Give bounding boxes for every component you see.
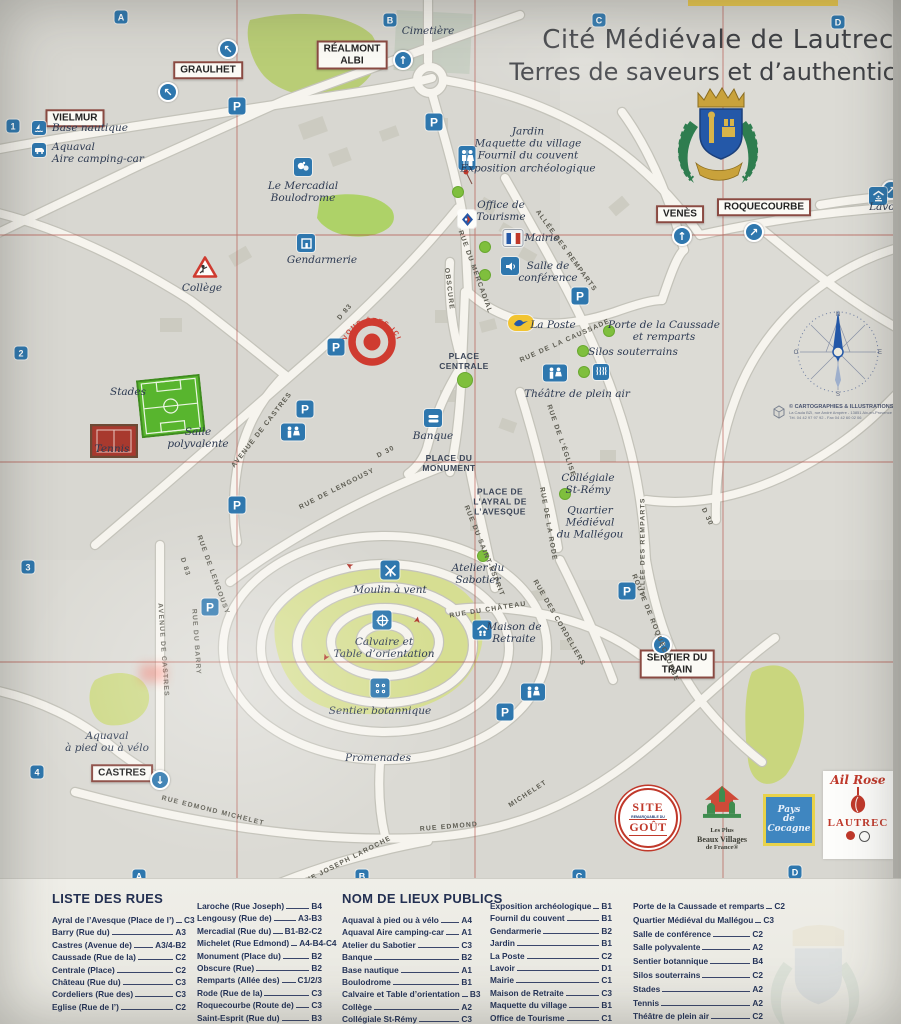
grid-ref: C3 <box>601 988 612 998</box>
poi-dot <box>577 345 589 357</box>
legend-row: Rode (Rue de la)C3 <box>197 988 322 1000</box>
garlic-icon <box>845 787 871 817</box>
legend-row: GendarmerieB2 <box>490 926 612 938</box>
school-warning-icon <box>192 256 218 285</box>
grid-ref: A2 <box>461 1002 472 1012</box>
place-name: Aquaval à pied ou à vélo <box>342 915 439 925</box>
leader-line <box>393 984 460 985</box>
leader-line <box>117 972 174 973</box>
toilets-icon <box>521 684 545 701</box>
botanic-trail-icon <box>371 679 390 698</box>
grid-ref: C2 <box>601 951 612 961</box>
leader-line <box>123 984 174 985</box>
legend-row: StadesA2 <box>633 984 763 998</box>
tennis-court <box>90 424 138 463</box>
leader-line <box>441 922 460 923</box>
leader-line <box>112 934 174 935</box>
la-poste-icon <box>508 315 534 331</box>
grid-ref: C2 <box>175 952 186 962</box>
leader-line <box>566 995 600 996</box>
map-legend: LISTE DES RUES Ayral de l’Avesque (Place… <box>0 878 901 1024</box>
conference-hall-icon <box>501 257 519 275</box>
place-name: Fournil du couvent <box>490 913 565 923</box>
legend-places-col3: Porte de la Caussade et rempartsC2Quarti… <box>633 901 763 1024</box>
sign-graulhet: GRAULHET <box>173 61 243 79</box>
leader-line <box>282 982 296 983</box>
poi-dot <box>559 488 571 500</box>
leader-line <box>283 958 309 959</box>
legend-row: Ayral de l’Avesque (Place de l’)C3 <box>52 915 186 927</box>
cube-icon <box>772 404 786 420</box>
sign-venes: VENÈS <box>656 205 704 223</box>
leader-line <box>711 1018 750 1019</box>
grid-ref: C2 <box>175 965 186 975</box>
street-name: Obscure (Rue) <box>197 963 254 973</box>
parking-icon: P <box>229 497 246 514</box>
page-subtitle: Terres de saveurs et d’authenticité <box>509 58 901 86</box>
grid-ref: C1/2/3 <box>298 975 322 985</box>
leader-line <box>567 920 600 921</box>
place-name: Maquette du village <box>490 1000 567 1010</box>
svg-text:E: E <box>878 350 882 356</box>
place-name: Porte de la Caussade et remparts <box>633 901 764 911</box>
cartographer-credit: © CARTOGRAPHIES & ILLUSTRATIONS La Caula… <box>772 404 900 420</box>
parking-icon: P <box>202 599 219 616</box>
legend-row: Roquecourbe (Route de)C3 <box>197 1000 322 1012</box>
grid-marker-d-bottom: D <box>789 866 802 879</box>
legend-row: Théâtre de plein airC2 <box>633 1011 763 1024</box>
place-name: Exposition archéologique <box>490 901 591 911</box>
poi-dot <box>479 241 491 253</box>
leader-line <box>527 958 600 959</box>
legend-row: Maison de RetraiteC3 <box>490 988 612 1000</box>
sailing-base-icon <box>32 121 46 135</box>
street-name: Monument (Place du) <box>197 951 281 961</box>
legend-places-col1: Aquaval à pied ou à véloA4Aquaval Aire c… <box>342 915 472 1024</box>
parking-icon: P <box>229 98 246 115</box>
legend-row: LavoirD1 <box>490 963 612 975</box>
legend-row: Silos souterrainsC2 <box>633 970 763 984</box>
grid-ref: C3 <box>175 977 186 987</box>
grid-ref: C3 <box>175 989 186 999</box>
legend-row: Michelet (Rue Edmond)A4-B4-C4 <box>197 938 322 950</box>
legend-row: Quartier Médiéval du MallégouC3 <box>633 915 763 929</box>
street-name: Barry (Rue du) <box>52 927 110 937</box>
grid-ref: A3 <box>175 927 186 937</box>
label-place-monument: PLACE DU MONUMENT <box>422 453 475 473</box>
legend-row: Porte de la Caussade et rempartsC2 <box>633 901 763 915</box>
place-name: Boulodrome <box>342 977 391 987</box>
legend-row: Remparts (Allée des)C1/2/3 <box>197 975 322 987</box>
leader-line <box>516 982 599 983</box>
legend-row: Eglise (Rue de l’)C2 <box>52 1002 186 1014</box>
place-name: Office de Tourisme <box>490 1013 565 1023</box>
place-name: Théâtre de plein air <box>633 1011 709 1021</box>
place-name: Collégiale St-Rémy <box>342 1014 417 1024</box>
legend-row: Atelier du SabotierC3 <box>342 940 472 952</box>
grid-ref: B4 <box>752 956 763 966</box>
legend-row: Mercadial (Rue du)B1-B2-C2 <box>197 926 322 938</box>
place-name: Calvaire et Table d’orientation <box>342 989 460 999</box>
leader-line <box>593 908 599 909</box>
street-name: Remparts (Allée des) <box>197 975 280 985</box>
street-name: Centrale (Place) <box>52 965 115 975</box>
place-name: La Poste <box>490 951 525 961</box>
street-name: Roquecourbe (Route de) <box>197 1000 294 1010</box>
street-name: Laroche (Rue Joseph) <box>197 901 284 911</box>
grid-marker-1-left: 1 <box>7 120 20 133</box>
legend-streets-title: LISTE DES RUES <box>52 891 163 906</box>
place-name: Stades <box>633 984 660 994</box>
place-name: Lavoir <box>490 963 515 973</box>
village-icon <box>699 784 745 822</box>
grid-ref: A4-B4-C4 <box>299 938 336 948</box>
legend-row: Saint-Esprit (Rue du)B3 <box>197 1013 322 1024</box>
gendarmerie-icon <box>297 234 315 252</box>
washhouse-icon <box>869 187 887 205</box>
svg-text:N: N <box>836 312 840 318</box>
label-place-ayral: PLACE DE L’AYRAL DE L’AVESQUE <box>473 487 527 518</box>
leader-line <box>419 1021 459 1022</box>
leader-line <box>121 1009 174 1010</box>
place-name: Quartier Médiéval du Mallégou <box>633 915 753 925</box>
grid-ref: C2 <box>752 970 763 980</box>
legend-row: Salle de conférenceC2 <box>633 929 763 943</box>
leader-line <box>296 1007 310 1008</box>
street-name: Lengousy (Rue de) <box>197 913 272 923</box>
place-name: Banque <box>342 952 372 962</box>
direction-arrow-icon: ↑ <box>150 770 170 790</box>
grid-ref: B1 <box>601 913 612 923</box>
legend-row: Fournil du couventB1 <box>490 913 612 925</box>
street-name: Caussade (Rue de la) <box>52 952 136 962</box>
legend-row: La PosteC2 <box>490 951 612 963</box>
grid-ref: C3 <box>311 1000 322 1010</box>
grid-marker-b-top: B <box>384 14 397 27</box>
walk-arrow-icon: ➤ <box>412 615 423 624</box>
leader-line <box>517 945 599 946</box>
place-name: Gendarmerie <box>490 926 541 936</box>
leader-line <box>291 945 297 946</box>
place-name: Collège <box>342 1002 372 1012</box>
grid-ref: A2 <box>752 984 763 994</box>
legend-places-col2: Exposition archéologiqueB1Fournil du cou… <box>490 901 612 1024</box>
place-name: Mairie <box>490 975 514 985</box>
leader-line <box>661 1005 750 1006</box>
leader-line <box>766 908 772 909</box>
open-air-theatre-icon <box>593 364 609 380</box>
legend-row: JardinB1 <box>490 938 612 950</box>
grid-ref: A2 <box>752 942 763 952</box>
grid-ref: B1 <box>601 938 612 948</box>
label-place-centrale: PLACE CENTRALE <box>439 351 488 371</box>
leader-line <box>517 970 599 971</box>
legend-row: Aquaval à pied ou à véloA4 <box>342 915 472 927</box>
grid-ref: C2 <box>175 1002 186 1012</box>
grid-ref: B1 <box>461 977 472 987</box>
stadium-field <box>136 374 206 443</box>
sign-castres: CASTRES <box>91 764 153 782</box>
grid-ref: C3 <box>311 988 322 998</box>
certification-seal <box>859 831 870 842</box>
watermark-coat-of-arms <box>750 919 880 1024</box>
grid-marker-4-left: 4 <box>31 766 44 779</box>
logo-pays-de-cocagne: Pays de Cocagne <box>763 794 815 846</box>
poi-dot <box>457 372 473 388</box>
parking-icon: P <box>297 401 314 418</box>
grid-ref: A3/4-B2 <box>155 940 186 950</box>
street-name: Château (Rue du) <box>52 977 121 987</box>
legend-row: Lengousy (Rue de)A3-B3 <box>197 913 322 925</box>
leader-line <box>710 963 750 964</box>
tourist-office-icon <box>458 210 476 228</box>
place-name: Atelier du Sabotier <box>342 940 416 950</box>
leader-line <box>569 1007 599 1008</box>
legend-row: Sentier botanniqueB4 <box>633 956 763 970</box>
toilets-icon <box>459 146 476 170</box>
leader-line <box>713 936 750 937</box>
parking-icon: P <box>572 288 589 305</box>
grid-ref: B1-B2-C2 <box>285 926 322 936</box>
street-remparts: ALLÉE DES REMPARTS <box>640 497 647 596</box>
grid-ref: B2 <box>311 951 322 961</box>
leader-line <box>567 1020 600 1021</box>
retirement-home-icon <box>473 621 492 640</box>
sign-vielmur: VIELMUR <box>46 109 105 127</box>
map-panel-photo: Cité Médiévale de Lautrec Terres de save… <box>0 0 901 1024</box>
toilets-icon <box>281 424 305 441</box>
grid-ref: C3 <box>461 1014 472 1024</box>
leader-line <box>256 970 309 971</box>
leader-line <box>702 949 750 950</box>
legend-row: TennisA2 <box>633 998 763 1012</box>
legend-row: CollègeA2 <box>342 1002 472 1014</box>
legend-streets-col2: Laroche (Rue Joseph)B4Lengousy (Rue de)A… <box>197 901 322 1024</box>
parking-icon: P <box>426 114 443 131</box>
legend-row: Aquaval Aire camping-carA1 <box>342 927 472 939</box>
place-name: Salle polyvalente <box>633 942 700 952</box>
legend-row: BoulodromeB1 <box>342 977 472 989</box>
legend-row: Centrale (Place)C2 <box>52 965 186 977</box>
place-name: Jardin <box>490 938 515 948</box>
leader-line <box>755 922 761 923</box>
leader-line <box>374 959 459 960</box>
legend-row: Cordeliers (Rue des)C3 <box>52 989 186 1001</box>
place-name: Salle de conférence <box>633 929 711 939</box>
place-name: Silos souterrains <box>633 970 700 980</box>
leader-line <box>176 922 182 923</box>
grid-ref: B4 <box>311 901 322 911</box>
logo-site-remarquable-du-gout: SITE REMARQUABLE DU GOÛT <box>618 788 678 848</box>
leader-line <box>462 996 468 997</box>
sign-roquecourbe: ROQUECOURBE <box>717 198 811 216</box>
grid-marker-d-top: D <box>832 16 845 29</box>
street-name: Eglise (Rue de l’) <box>52 1002 119 1012</box>
grid-ref: B1 <box>601 901 612 911</box>
grid-ref: A4 <box>461 915 472 925</box>
map-pin-icon <box>462 168 476 188</box>
legend-row: MairieC1 <box>490 975 612 987</box>
place-name: Aquaval Aire camping-car <box>342 927 444 937</box>
grid-ref: C3 <box>461 940 472 950</box>
grid-marker-3-left: 3 <box>22 561 35 574</box>
place-name: Sentier botannique <box>633 956 708 966</box>
lautrec-coat-of-arms <box>660 83 776 195</box>
grid-marker-c-top: C <box>593 14 606 27</box>
grid-ref: A3-B3 <box>298 913 322 923</box>
grid-ref: C2 <box>752 1011 763 1021</box>
grid-ref: C3 <box>184 915 195 925</box>
leader-line <box>264 995 309 996</box>
legend-row: Base nautiqueA1 <box>342 965 472 977</box>
legend-row: Laroche (Rue Joseph)B4 <box>197 901 322 913</box>
street-name: Castres (Avenue de) <box>52 940 132 950</box>
legend-row: Barry (Rue du)A3 <box>52 927 186 939</box>
place-name: Base nautique <box>342 965 399 975</box>
legend-row: Exposition archéologiqueB1 <box>490 901 612 913</box>
place-name: Maison de Retraite <box>490 988 564 998</box>
leader-line <box>662 991 750 992</box>
street-name: Mercadial (Rue du) <box>197 926 271 936</box>
leader-line <box>418 947 460 948</box>
grid-ref: A1 <box>461 965 472 975</box>
legend-row: Collégiale St-RémyC3 <box>342 1014 472 1024</box>
street-name: Cordeliers (Rue des) <box>52 989 133 999</box>
leader-line <box>702 977 750 978</box>
legend-row: BanqueB2 <box>342 952 472 964</box>
grid-ref: A2 <box>752 998 763 1008</box>
logo-plus-beaux-villages: Les Plus Beaux Villages de France® <box>697 784 747 852</box>
grid-ref: C2 <box>774 901 785 911</box>
grid-ref: B2 <box>601 926 612 936</box>
legend-row: Maquette du villageB1 <box>490 1000 612 1012</box>
toilets-icon <box>543 365 567 382</box>
direction-arrow-icon: ↑ <box>672 226 692 246</box>
grid-ref: B1 <box>601 1000 612 1010</box>
legend-row: Caussade (Rue de la)C2 <box>52 952 186 964</box>
street-name: Ayral de l’Avesque (Place de l’) <box>52 915 174 925</box>
grid-marker-a-top: A <box>115 11 128 24</box>
legend-row: Castres (Avenue de)A3/4-B2 <box>52 940 186 952</box>
leader-line <box>274 920 296 921</box>
town-hall-flag-icon <box>503 229 524 247</box>
poi-dot <box>578 366 590 378</box>
leader-line <box>134 947 153 948</box>
legend-row: Salle polyvalenteA2 <box>633 942 763 956</box>
certification-seal <box>846 831 855 840</box>
leader-line <box>543 933 599 934</box>
street-name: Michelet (Rue Edmond) <box>197 938 289 948</box>
leader-line <box>138 959 173 960</box>
windmill-icon <box>381 561 400 580</box>
camper-area-icon <box>32 143 46 157</box>
grid-ref: B3 <box>470 989 481 999</box>
leader-line <box>282 1020 310 1021</box>
place-name: Tennis <box>633 998 659 1008</box>
grid-ref: D1 <box>601 963 612 973</box>
grid-ref: B2 <box>311 963 322 973</box>
legend-row: Office de TourismeC1 <box>490 1013 612 1024</box>
orientation-table-icon <box>373 611 392 630</box>
leader-line <box>286 908 309 909</box>
legend-row: Calvaire et Table d’orientationB3 <box>342 989 472 1001</box>
grid-ref: C1 <box>601 1013 612 1023</box>
leader-line <box>374 1009 459 1010</box>
grid-ref: C2 <box>752 929 763 939</box>
leader-line <box>446 934 459 935</box>
svg-text:O: O <box>794 350 799 356</box>
svg-text:S: S <box>836 392 840 398</box>
grid-ref: C3 <box>763 915 774 925</box>
legend-row: Monument (Place du)B2 <box>197 951 322 963</box>
grid-ref: B3 <box>311 1013 322 1023</box>
legend-row: Château (Rue du)C3 <box>52 977 186 989</box>
boulodrome-icon <box>294 158 312 176</box>
legend-streets-col1: Ayral de l’Avesque (Place de l’)C3Barry … <box>52 915 186 1014</box>
bank-icon <box>424 409 442 427</box>
street-name: Saint-Esprit (Rue du) <box>197 1013 280 1023</box>
page-title: Cité Médiévale de Lautrec <box>542 25 894 55</box>
legend-places-title: NOM DE LIEUX PUBLICS <box>342 891 503 906</box>
compass-rose: N S E O <box>792 306 884 398</box>
leader-line <box>273 933 282 934</box>
parking-icon: P <box>497 704 514 721</box>
leader-line <box>135 996 173 997</box>
direction-arrow-icon: ↑ <box>393 50 413 70</box>
grid-marker-2-left: 2 <box>15 347 28 360</box>
grid-ref: C1 <box>601 975 612 985</box>
sign-realmont-albi: RÉALMONT ALBI <box>317 41 388 70</box>
street-name: Rode (Rue de la) <box>197 988 262 998</box>
grid-ref: A1 <box>461 927 472 937</box>
leader-line <box>401 972 460 973</box>
logo-ail-rose-lautrec: Ail Rose LAUTREC <box>823 771 893 859</box>
grid-ref: B2 <box>461 952 472 962</box>
legend-row: Obscure (Rue)B2 <box>197 963 322 975</box>
